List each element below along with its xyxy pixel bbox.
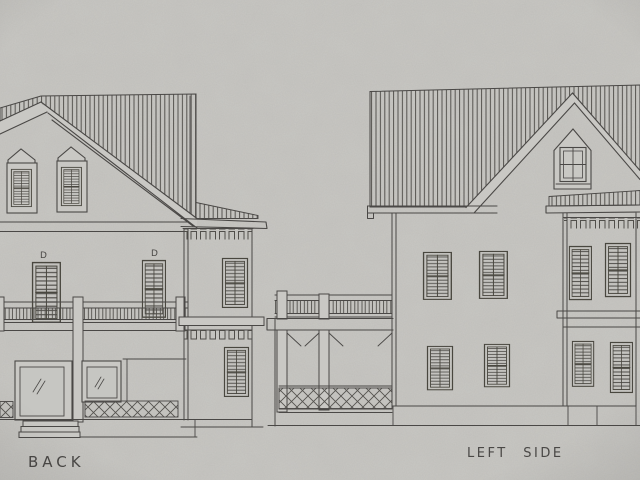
blueprint-canvas: D D — [0, 0, 640, 480]
blueprint-page: D D — [0, 0, 640, 480]
vignette-overlay — [0, 0, 640, 480]
